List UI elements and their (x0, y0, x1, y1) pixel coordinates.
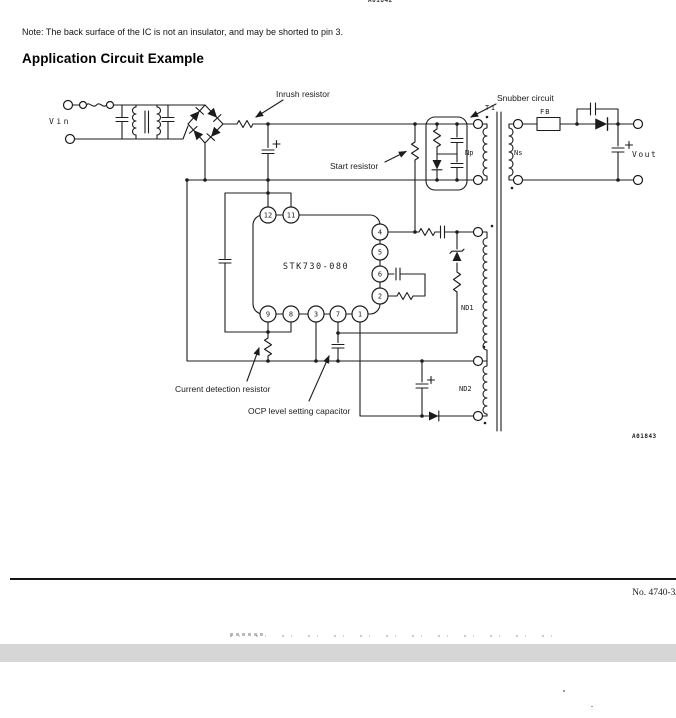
scan-artifact-clump (230, 633, 264, 636)
scan-code-figure: A01843 (632, 433, 657, 440)
fb-box (537, 118, 560, 131)
vout-label: Vout (632, 150, 657, 159)
junction-dots (185, 116, 620, 425)
gray-band (0, 644, 676, 662)
pin-11: 11 (287, 212, 295, 220)
zener-diode (450, 249, 464, 261)
pin-8: 8 (289, 311, 293, 319)
ns-label: Ns (514, 149, 522, 157)
ocp-capacitor-label: OCP level setting capacitor (248, 406, 351, 416)
t1-label: T1 (485, 104, 496, 112)
pin-4: 4 (378, 229, 382, 237)
start-resistor-label: Start resistor (330, 161, 378, 171)
pin-2: 2 (378, 293, 382, 301)
fb-label: FB (540, 108, 550, 116)
terminals (64, 101, 643, 421)
ic-part-number: STK730-080 (283, 262, 349, 272)
current-detection-label: Current detection resistor (175, 384, 271, 394)
pin-1: 1 (358, 311, 362, 319)
footer-rule (10, 578, 676, 580)
bridge-rectifier (189, 107, 221, 140)
snubber-circuit-label: Snubber circuit (497, 93, 554, 103)
scan-speck (563, 690, 565, 692)
nd2-label: ND2 (459, 385, 472, 393)
snubber-diode (432, 160, 442, 170)
pin-5: 5 (378, 249, 382, 257)
scan-artifact-dots (230, 635, 566, 637)
application-circuit-diagram: 12 11 4 5 6 2 9 8 3 7 1 Vin Inrush resis… (0, 0, 676, 570)
circuit-wires (73, 103, 634, 431)
nd1-label: ND1 (461, 304, 474, 312)
pin-6: 6 (378, 271, 382, 279)
nd2-diode (429, 411, 439, 421)
pin-7: 7 (336, 311, 340, 319)
scan-speck (591, 706, 593, 707)
inrush-resistor-label: Inrush resistor (276, 89, 330, 99)
annotation-arrows (247, 100, 496, 401)
output-diode (595, 118, 607, 131)
pin-12: 12 (264, 212, 272, 220)
vin-label: Vin (49, 117, 71, 126)
pin-9: 9 (266, 311, 270, 319)
pin-3: 3 (314, 311, 318, 319)
np-label: Np (465, 149, 473, 157)
page-number: No. 4740-3/ (632, 588, 676, 598)
datasheet-page: A01842 Note: The back surface of the IC … (0, 0, 676, 718)
